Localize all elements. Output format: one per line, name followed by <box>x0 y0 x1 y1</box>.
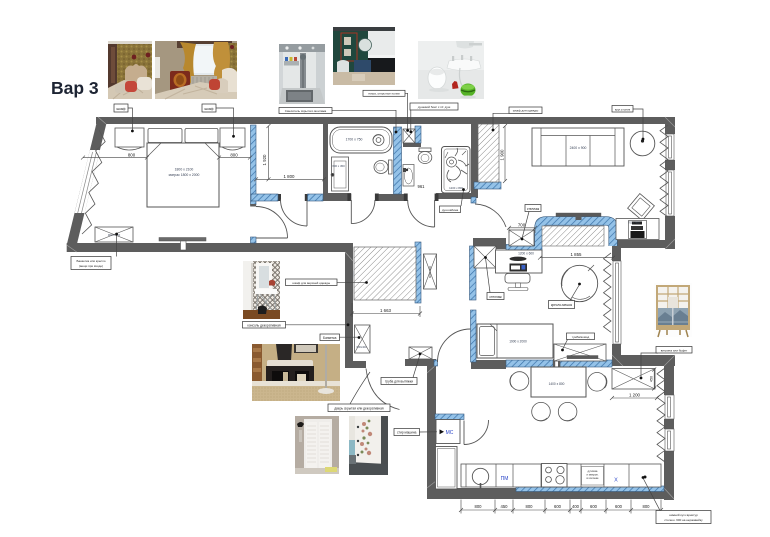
svg-text:1900 x 2000: 1900 x 2000 <box>509 339 527 343</box>
svg-text:1 200: 1 200 <box>629 392 641 397</box>
svg-text:Банкетка или кресло: Банкетка или кресло <box>76 259 105 263</box>
svg-text:1 800: 1 800 <box>284 174 296 179</box>
svg-text:600: 600 <box>590 504 598 509</box>
svg-text:600х400: 600х400 <box>357 345 368 349</box>
svg-text:800: 800 <box>526 504 534 509</box>
svg-text:МС: МС <box>446 430 454 436</box>
svg-text:X: X <box>614 478 618 484</box>
svg-text:ПМ: ПМ <box>501 476 509 482</box>
svg-text:600: 600 <box>554 504 562 509</box>
svg-text:450: 450 <box>650 376 654 382</box>
svg-text:стеллаж: стеллаж <box>527 207 540 211</box>
svg-text:600 x 300: 600 x 300 <box>428 265 432 278</box>
svg-text:нижний кух.гарнитур: нижний кух.гарнитур <box>669 513 698 517</box>
svg-text:800: 800 <box>230 153 238 158</box>
svg-text:400: 400 <box>572 504 580 509</box>
svg-text:1 663: 1 663 <box>380 308 392 313</box>
svg-text:(вещи при входе): (вещи при входе) <box>79 264 103 268</box>
svg-text:матрас 1800 x 2000: матрас 1800 x 2000 <box>169 173 200 177</box>
svg-text:шкаф для верхней одежды: шкаф для верхней одежды <box>292 281 330 285</box>
svg-text:шкаф для одежды: шкаф для одежды <box>513 109 539 113</box>
svg-text:800: 800 <box>128 153 136 158</box>
svg-text:круг.столик: круг.столик <box>615 107 631 111</box>
svg-text:Смеситель скрытого монтажа: Смеситель скрытого монтажа <box>285 109 327 113</box>
svg-text:витрина или буфет: витрина или буфет <box>661 348 688 352</box>
svg-text:800: 800 <box>475 504 483 509</box>
svg-text:душевой бокс с п/г душ: душевой бокс с п/г душ <box>418 105 451 109</box>
svg-text:900 x 350: 900 x 350 <box>108 233 121 237</box>
svg-text:в колонке: в колонке <box>586 477 599 480</box>
svg-text:600: 600 <box>615 504 623 509</box>
svg-text:1700 x 750: 1700 x 750 <box>346 137 363 141</box>
svg-text:961: 961 <box>418 184 426 189</box>
svg-text:консоль декоративная: консоль декоративная <box>247 323 280 327</box>
svg-text:1200 x 800: 1200 x 800 <box>449 186 463 190</box>
svg-text:Вар 3: Вар 3 <box>51 78 99 98</box>
svg-text:дверь скрытая или декоративная: дверь скрытая или декоративная <box>334 406 384 410</box>
svg-text:1 855: 1 855 <box>571 252 583 257</box>
svg-text:стир машина: стир машина <box>397 431 417 435</box>
svg-text:тумба/комод: тумба/комод <box>572 335 590 339</box>
svg-text:столеш. 600 на нержавейку: столеш. 600 на нержавейку <box>664 518 703 522</box>
svg-text:кресло-мешок: кресло-мешок <box>551 303 573 307</box>
svg-text:душ.кабина: душ.кабина <box>442 208 459 212</box>
svg-text:ниша, открытые полки: ниша, открытые полки <box>368 92 400 96</box>
svg-text:700 x 450: 700 x 450 <box>628 221 640 225</box>
svg-text:1800 x 2100: 1800 x 2100 <box>175 168 194 172</box>
svg-text:шкаф: шкаф <box>117 107 126 111</box>
svg-text:1200 x 600: 1200 x 600 <box>518 252 534 256</box>
svg-text:стеллаж: стеллаж <box>489 295 502 299</box>
svg-text:труба для вытяжки: труба для вытяжки <box>385 380 413 384</box>
svg-text:1400 x 800: 1400 x 800 <box>549 382 565 386</box>
svg-text:800: 800 <box>643 504 651 509</box>
svg-text:1 920: 1 920 <box>262 154 267 166</box>
svg-text:1 900: 1 900 <box>500 149 505 161</box>
svg-text:600 x 450: 600 x 450 <box>332 164 345 168</box>
svg-text:2400 x 900: 2400 x 900 <box>570 146 587 150</box>
svg-text:шкаф: шкаф <box>205 107 214 111</box>
svg-text:450: 450 <box>501 504 509 509</box>
svg-text:700: 700 <box>518 223 526 228</box>
svg-text:Банкетка: Банкетка <box>323 336 337 340</box>
